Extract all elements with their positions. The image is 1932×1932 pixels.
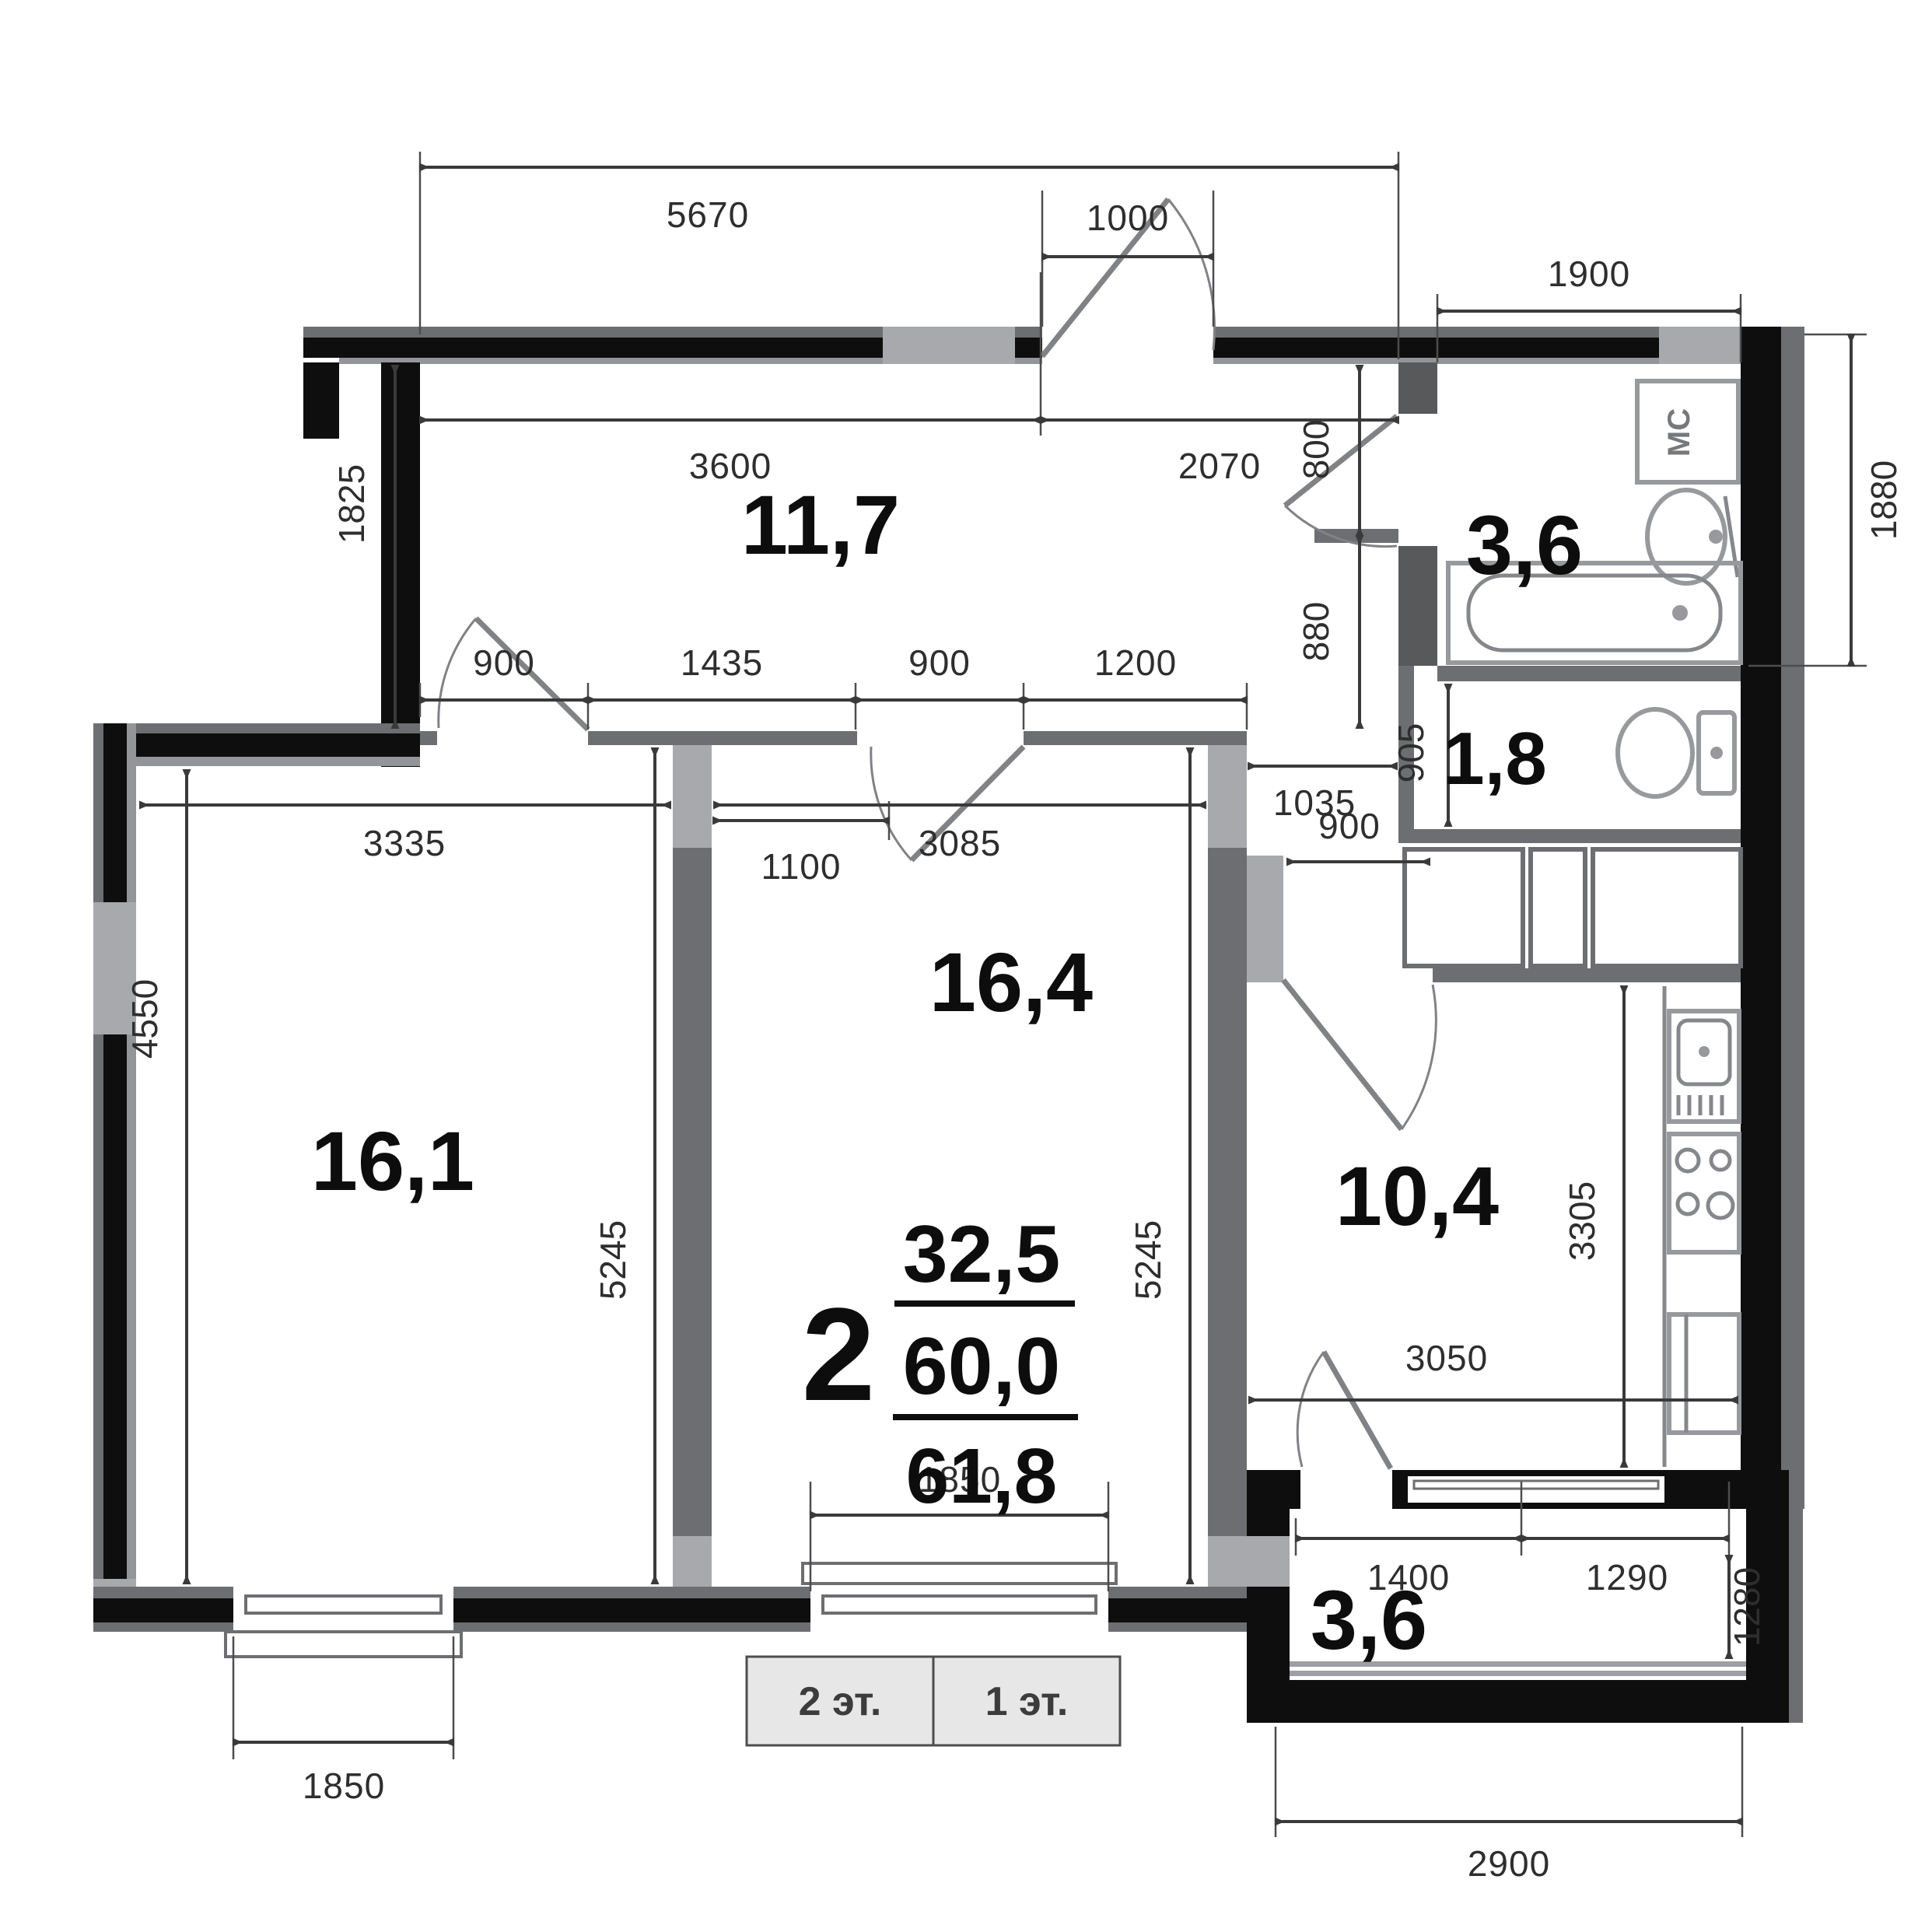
- apartment-info: 2 32,5 60,0 61,8: [802, 1209, 1078, 1520]
- dim-corridor-900b: 900: [908, 642, 971, 683]
- dim-5245-living: 5245: [593, 1220, 633, 1300]
- kitchen-sink-icon: [1669, 1011, 1739, 1122]
- dim-corridor-900a: 900: [473, 642, 535, 683]
- wardrobe-icon: [1405, 849, 1741, 966]
- tab-floor-1-label[interactable]: 1 эт.: [985, 1679, 1069, 1724]
- dim-2900: 2900: [1468, 1843, 1550, 1884]
- dim-800: 800: [1296, 420, 1336, 480]
- dim-3305: 3305: [1562, 1181, 1602, 1261]
- dim-corridor-1200: 1200: [1094, 642, 1177, 683]
- living-area-value: 32,5: [903, 1209, 1060, 1300]
- dim-5245-bedroom: 5245: [1128, 1220, 1168, 1300]
- bedroom-window: [803, 1563, 1116, 1632]
- dim-4550: 4550: [124, 979, 165, 1059]
- floor-selector: 2 эт. 1 эт.: [747, 1657, 1120, 1745]
- hallway-area-label: 11,7: [741, 478, 900, 572]
- dim-1825: 1825: [331, 464, 372, 544]
- balcony-area-label: 3,6: [1311, 1573, 1427, 1667]
- floorplan-stage: 5670 1000 1900 3600 2070 1825 800 880 18…: [0, 0, 1932, 1932]
- dim-880: 880: [1296, 602, 1336, 662]
- dim-1290: 1290: [1586, 1557, 1668, 1598]
- dim-3085: 3085: [919, 823, 1001, 863]
- washing-machine-label: МС: [1662, 408, 1696, 457]
- dim-1100: 1100: [761, 846, 842, 887]
- total-area-value: 61,8: [906, 1433, 1058, 1520]
- toilet-area-label: 1,8: [1443, 717, 1546, 800]
- kitchen-area-label: 10,4: [1335, 1149, 1499, 1243]
- floorplan-drawing: 5670 1000 1900 3600 2070 1825 800 880 18…: [0, 0, 1932, 1932]
- bedroom-area-label: 16,4: [929, 935, 1093, 1029]
- dim-3335: 3335: [363, 823, 446, 863]
- kitchen-door: [1283, 980, 1436, 1129]
- bathroom-area-label: 3,6: [1466, 498, 1583, 592]
- dim-1000: 1000: [1087, 198, 1169, 238]
- living-area-label: 16,1: [311, 1114, 474, 1208]
- dim-1850-living: 1850: [303, 1766, 385, 1806]
- dim-2070: 2070: [1178, 446, 1261, 486]
- dim-905: 905: [1391, 723, 1431, 783]
- dim-corridor-1435: 1435: [681, 642, 763, 683]
- toilet-icon: [1618, 709, 1734, 796]
- tab-floor-2-label[interactable]: 2 эт.: [799, 1679, 882, 1724]
- balcony-door: [1297, 1352, 1391, 1468]
- living-room-window: [226, 1587, 461, 1657]
- dim-1900: 1900: [1548, 254, 1630, 294]
- dim-3050: 3050: [1405, 1338, 1488, 1378]
- kitchen-cabinet-icon: [1669, 1314, 1739, 1433]
- stove-icon: [1669, 1134, 1739, 1252]
- dim-1880: 1880: [1864, 460, 1904, 540]
- dim-900-kitchen: 900: [1318, 806, 1381, 846]
- dim-1280: 1280: [1727, 1567, 1767, 1647]
- dim-5670: 5670: [667, 194, 749, 235]
- rooms-count: 2: [802, 1281, 876, 1429]
- floor-area-value: 60,0: [903, 1321, 1060, 1412]
